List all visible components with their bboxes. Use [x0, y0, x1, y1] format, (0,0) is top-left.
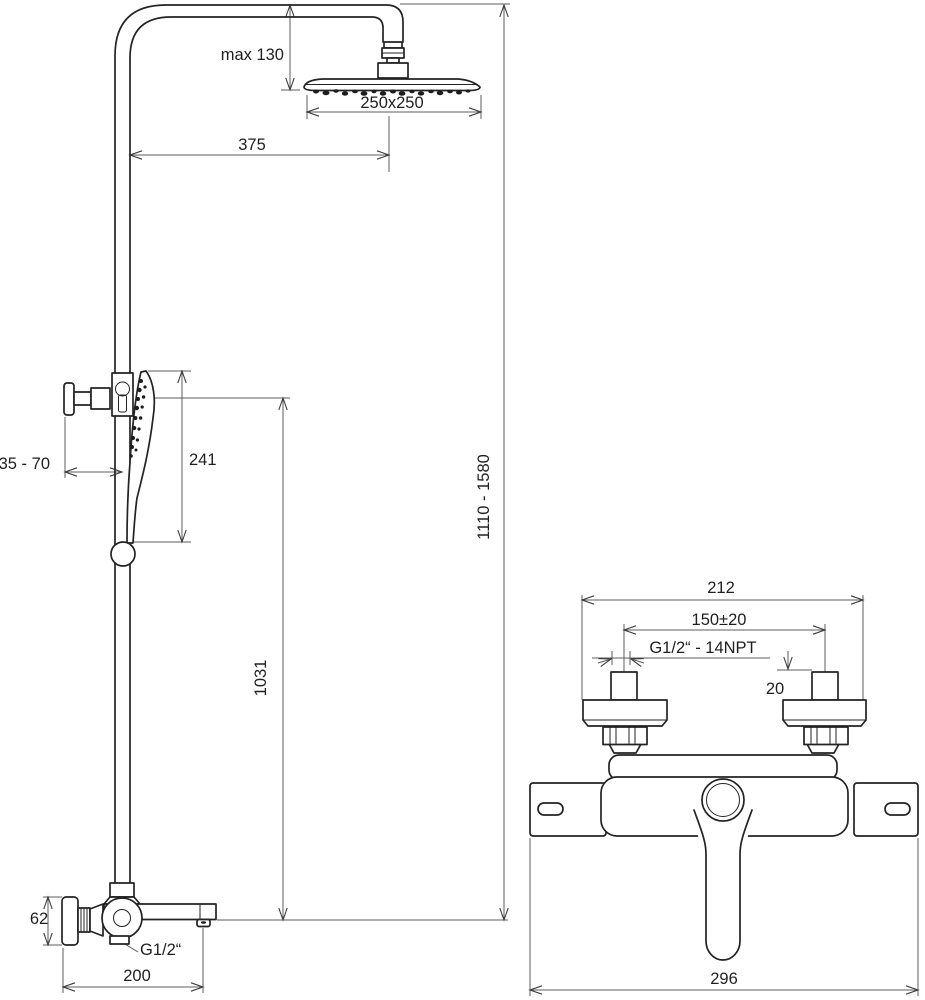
right-bracket-slot — [885, 803, 910, 815]
technical-drawing: max 130 250x250 375 241 35 - 70 1031 111… — [0, 0, 925, 1000]
bracket-collar — [91, 388, 110, 409]
dim-connection-centers-label: 150±20 — [692, 611, 747, 629]
shower-mixer — [62, 883, 216, 945]
mixer-top-connector — [110, 883, 134, 897]
mixer-wall-plate — [62, 897, 78, 945]
thermostat-handle — [102, 898, 142, 938]
mixer-cone — [90, 904, 103, 936]
connection-stubs — [583, 672, 866, 780]
dim-arm-projection-label: 375 — [238, 136, 266, 154]
dim-head-size-label: 250x250 — [360, 94, 423, 112]
wall-bracket — [64, 373, 133, 416]
shower-column-figure: max 130 250x250 375 241 35 - 70 1031 111… — [0, 4, 510, 993]
dim-stub-size-label: 20 — [766, 680, 784, 698]
slider-knob — [111, 542, 135, 566]
right-flange — [783, 700, 866, 726]
diverter-button — [702, 779, 744, 821]
bath-mixer-figure: 212 150±20 G1/2“ - 14NPT 20 296 — [530, 579, 918, 996]
dim-overall-height-label: 1110 - 1580 — [475, 454, 493, 540]
left-flange — [583, 700, 667, 726]
dim-mixer-height-label: 62 — [30, 910, 48, 928]
dim-wall-clearance-label: 35 - 70 — [0, 455, 50, 473]
dim-spout-projection-label: 200 — [123, 967, 151, 985]
dim-overall-width-label: 296 — [710, 970, 738, 988]
mixer-body-group — [530, 777, 918, 960]
bracket-wall-plate — [64, 383, 74, 415]
dim-bar-height-label: 1031 — [252, 660, 270, 697]
bracket-stem — [74, 392, 91, 405]
right-stub — [812, 672, 838, 700]
spout-mask — [694, 810, 752, 953]
hose-connection — [110, 936, 129, 944]
shower-column-dimensions — [43, 4, 510, 993]
dim-hose-thread-label: G1/2“ — [140, 941, 181, 959]
dim-max-drop-label: max 130 — [221, 46, 284, 64]
left-bracket-slot — [538, 803, 563, 815]
left-stub — [611, 672, 637, 700]
technical-drawing-page: max 130 250x250 375 241 35 - 70 1031 111… — [0, 0, 925, 1000]
dim-hand-shower-length-label: 241 — [189, 451, 217, 469]
overhead-shower — [304, 42, 480, 96]
dim-connection-thread-label: G1/2“ - 14NPT — [649, 639, 756, 657]
dim-body-width-label: 212 — [707, 579, 735, 597]
